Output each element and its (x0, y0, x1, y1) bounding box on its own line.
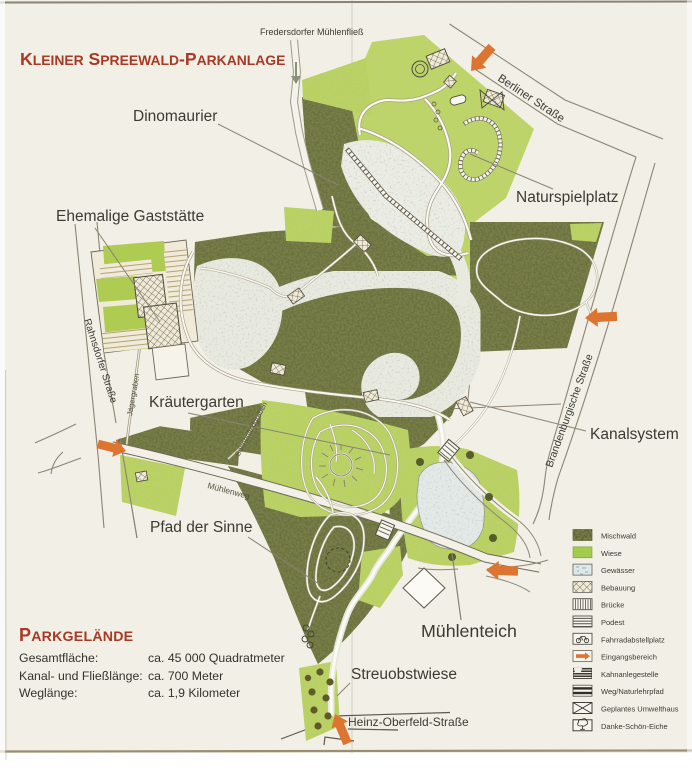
svg-text:Ehemalige Gaststätte: Ehemalige Gaststätte (56, 208, 204, 225)
svg-text:ca. 1,9 Kilometer: ca. 1,9 Kilometer (148, 686, 240, 700)
svg-text:Kanalsystem: Kanalsystem (590, 426, 679, 443)
svg-text:Gesamtfläche:: Gesamtfläche: (19, 651, 98, 665)
svg-text:Dinomaurier: Dinomaurier (133, 108, 217, 125)
svg-text:ca. 45 000 Quadratmeter: ca. 45 000 Quadratmeter (148, 651, 285, 665)
svg-text:Mischwald: Mischwald (601, 532, 636, 541)
svg-text:Geplantes Umwelthaus: Geplantes Umwelthaus (601, 705, 679, 714)
svg-text:Bebauung: Bebauung (601, 583, 635, 592)
svg-text:Kahnanlegestelle: Kahnanlegestelle (601, 670, 659, 679)
svg-text:Weglänge:: Weglänge: (19, 686, 78, 700)
svg-text:Podest: Podest (601, 618, 625, 627)
svg-text:Wiese: Wiese (601, 549, 622, 558)
svg-text:KLEINER SPREEWALD-PARKANLAGE: KLEINER SPREEWALD-PARKANLAGE (20, 49, 285, 69)
svg-text:Gewässer: Gewässer (601, 566, 635, 575)
svg-text:Eingangsbereich: Eingangsbereich (601, 653, 657, 662)
svg-text:ca. 700 Meter: ca. 700 Meter (148, 669, 223, 683)
svg-text:Naturspielplatz: Naturspielplatz (516, 189, 619, 206)
svg-text:Streuobstwiese: Streuobstwiese (351, 666, 457, 683)
svg-text:Kanal- und Fließlänge:: Kanal- und Fließlänge: (19, 669, 143, 683)
svg-text:Brücke: Brücke (601, 601, 624, 610)
svg-text:Weg/Naturlehrpfad: Weg/Naturlehrpfad (601, 687, 664, 696)
svg-text:Pfad der Sinne: Pfad der Sinne (150, 519, 253, 536)
svg-text:Kräutergarten: Kräutergarten (149, 394, 244, 411)
svg-text:Mühlenteich: Mühlenteich (421, 621, 517, 641)
svg-text:Fredersdorfer Mühlenfließ: Fredersdorfer Mühlenfließ (260, 27, 364, 37)
svg-text:Danke-Schön-Eiche: Danke-Schön-Eiche (601, 722, 668, 731)
svg-text:Fahrradabstellplatz: Fahrradabstellplatz (601, 635, 665, 644)
svg-text:Heinz-Oberfeld-Straße: Heinz-Oberfeld-Straße (348, 715, 469, 729)
